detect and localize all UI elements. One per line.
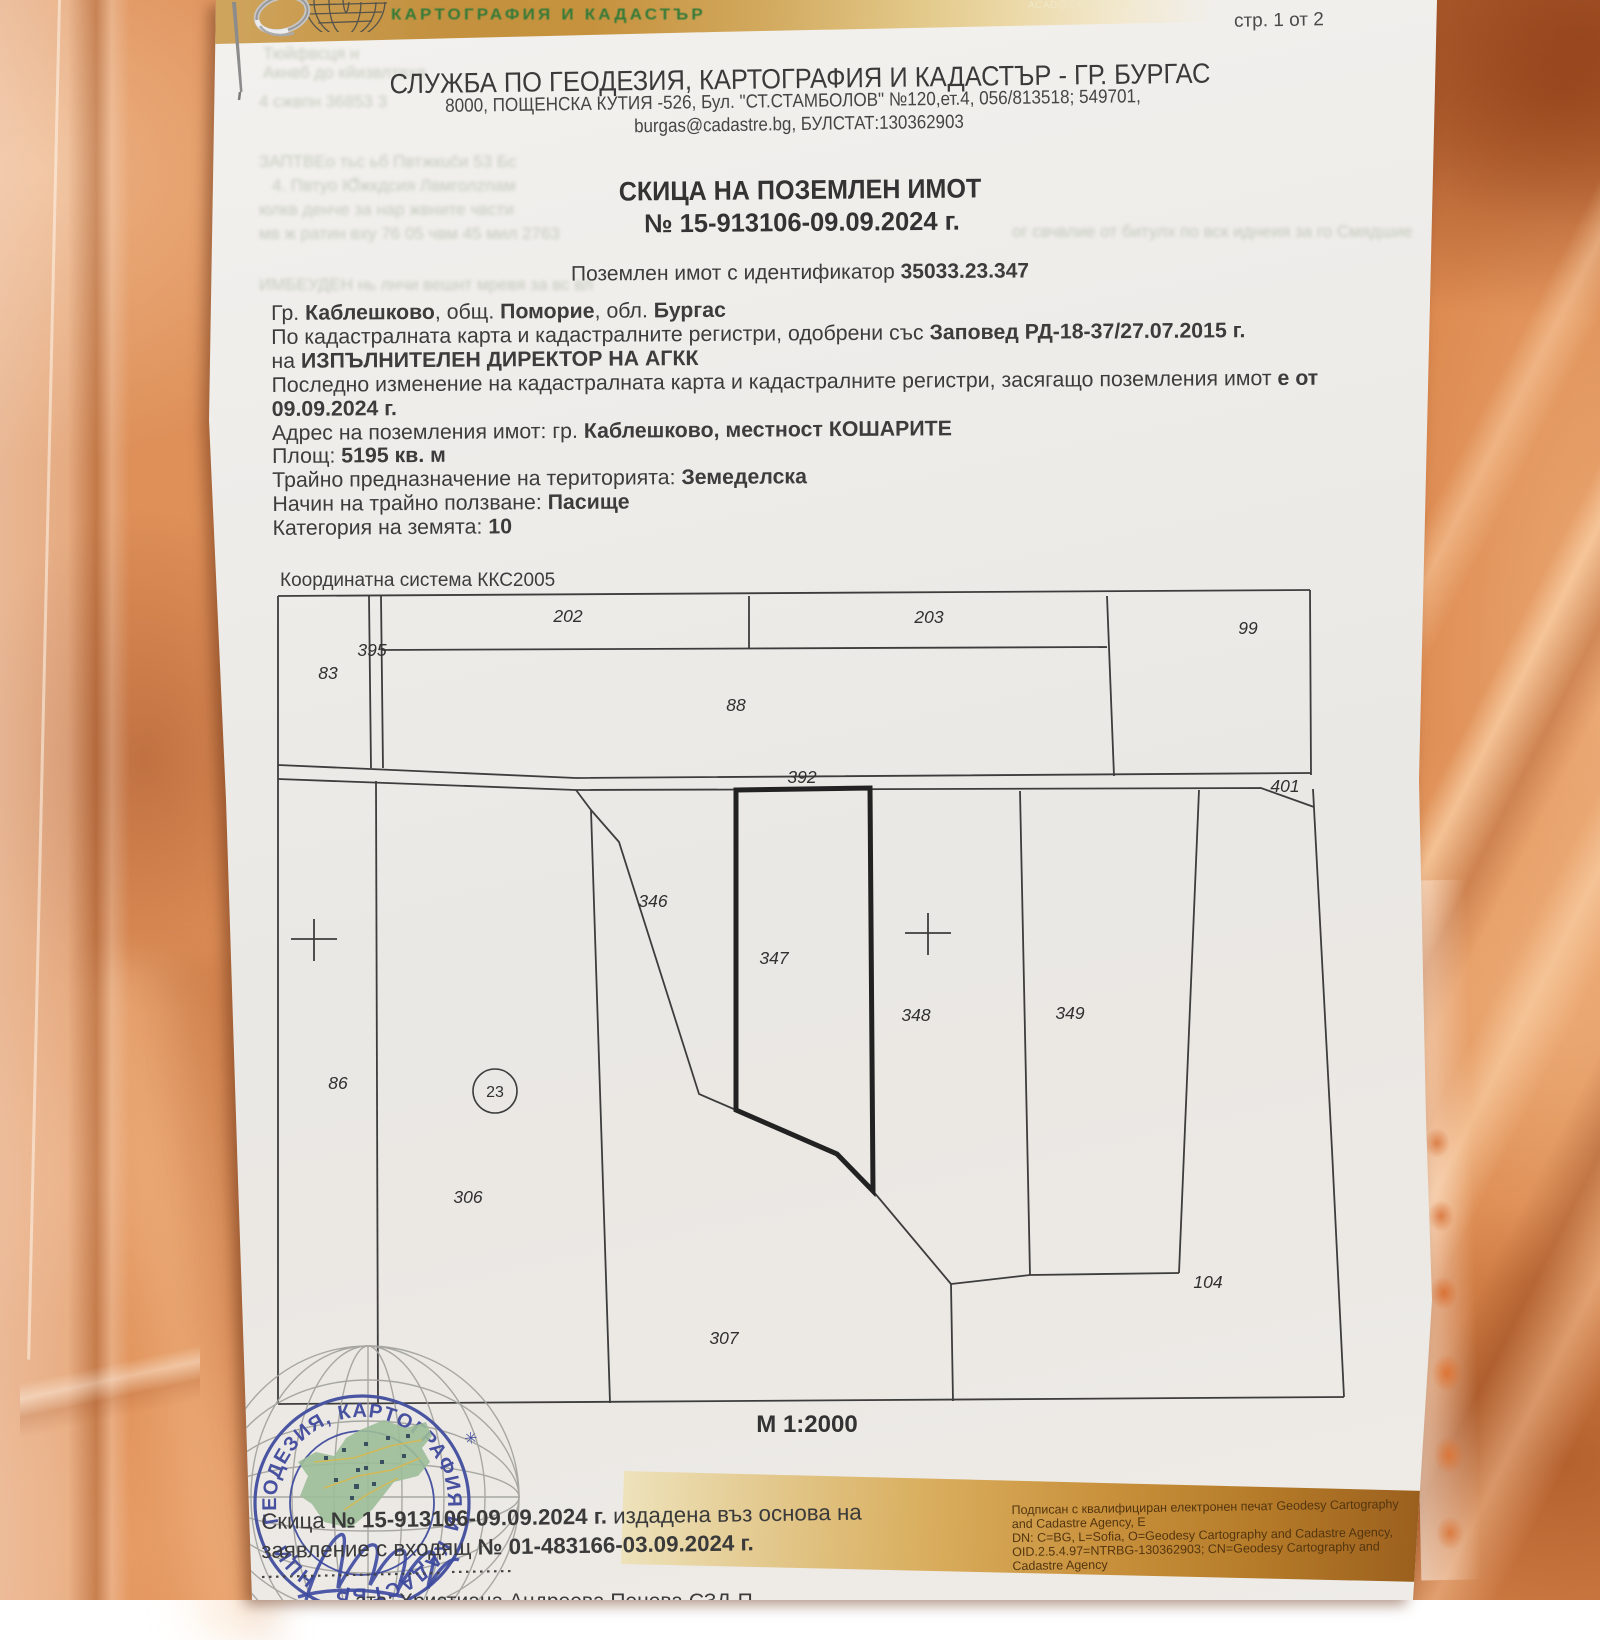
svg-text:✳: ✳ [459, 1428, 480, 1450]
